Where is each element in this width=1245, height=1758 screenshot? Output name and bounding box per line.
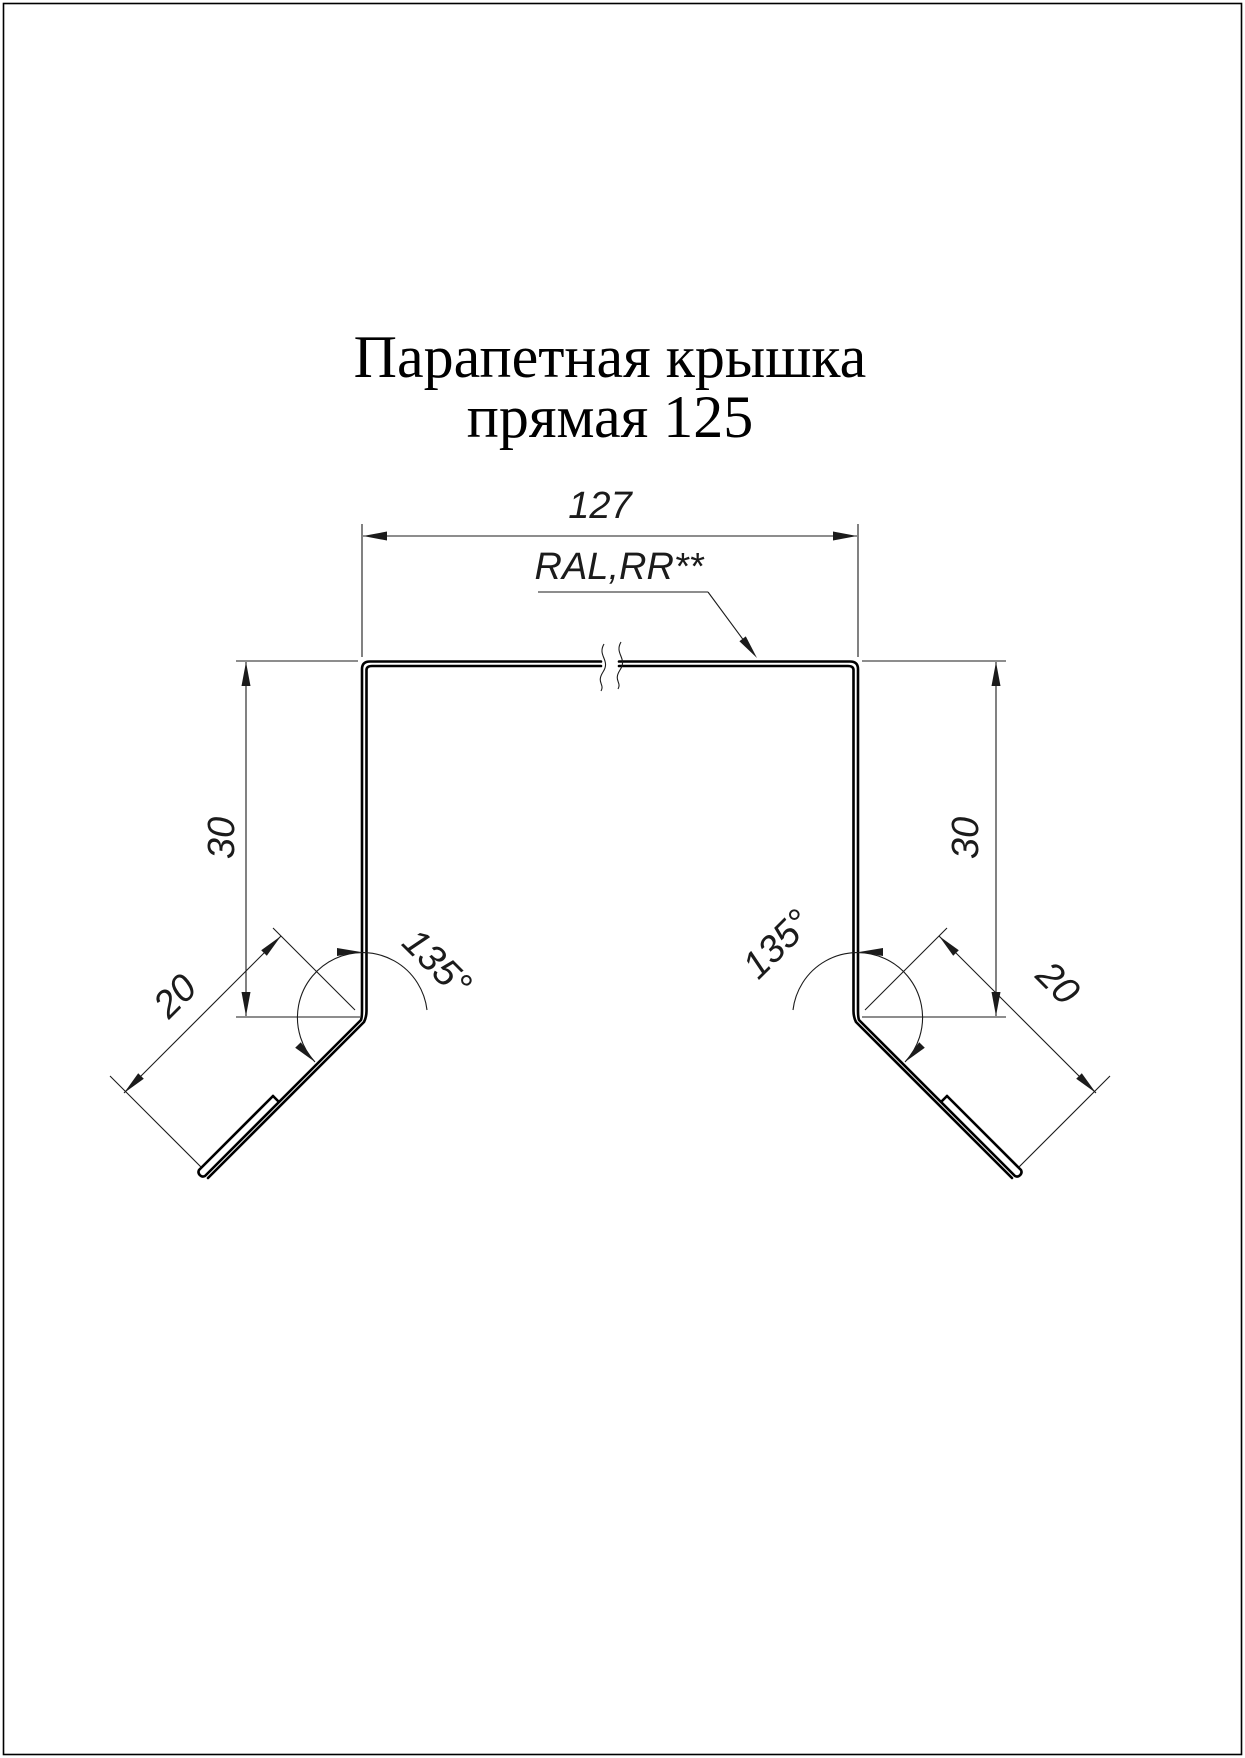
arrowhead-lower xyxy=(124,1073,144,1093)
arrowhead-top xyxy=(337,948,361,956)
profile-left-outer xyxy=(199,662,601,1177)
leader-arrowhead xyxy=(739,636,757,658)
arrowhead-left xyxy=(363,532,387,541)
dim-line xyxy=(124,936,281,1093)
arrowhead-leg xyxy=(905,1042,925,1062)
dim-right-angle-value: 135° xyxy=(735,902,820,987)
dimension-right-height: 30 xyxy=(862,661,1006,1017)
dimension-right-angle: 135° xyxy=(735,902,925,1062)
dimension-left-angle: 135° xyxy=(295,921,479,1062)
dim-right-height-value: 30 xyxy=(945,817,987,859)
arrowhead-leg xyxy=(295,1042,315,1062)
dim-left-angle-value: 135° xyxy=(394,921,479,1006)
profile-left-hem-step xyxy=(273,1096,279,1102)
arrowhead-top xyxy=(859,948,883,956)
coating-leader: RAL,RR** xyxy=(535,546,757,658)
dim-line xyxy=(939,936,1096,1093)
arrowhead-top xyxy=(242,662,251,686)
ext-line xyxy=(110,1076,201,1167)
drawing-page: Парапетная крышка прямая 125 xyxy=(0,0,1245,1758)
arrowhead-right xyxy=(833,532,857,541)
arrowhead-bottom xyxy=(242,992,251,1016)
arrowhead-top xyxy=(992,662,1001,686)
profile-outline xyxy=(199,642,1022,1178)
ext-line xyxy=(273,928,355,1010)
arrowhead-upper xyxy=(261,936,281,956)
dim-right-hem-value: 20 xyxy=(1027,953,1087,1013)
title-line-2: прямая 125 xyxy=(467,384,754,450)
dimension-right-hem: 20 xyxy=(865,928,1110,1167)
ext-line xyxy=(1019,1076,1110,1167)
ext-line xyxy=(865,928,947,1010)
page-border xyxy=(4,4,1242,1755)
dim-top-width-value: 127 xyxy=(568,485,633,527)
arrowhead-lower xyxy=(1076,1073,1096,1093)
dim-left-height-value: 30 xyxy=(201,817,243,859)
profile-right-hem-step xyxy=(942,1096,948,1102)
dimension-left-height: 30 xyxy=(201,661,360,1017)
break-symbol-left xyxy=(600,644,605,691)
arrowhead-upper xyxy=(939,936,959,956)
title-line-1: Парапетная крышка xyxy=(354,324,867,390)
profile-right-outer xyxy=(619,662,1021,1177)
drawing-title: Парапетная крышка прямая 125 xyxy=(354,324,867,450)
coating-label: RAL,RR** xyxy=(535,546,705,588)
dim-left-hem-value: 20 xyxy=(145,967,205,1027)
dimension-left-hem: 20 xyxy=(110,928,355,1167)
technical-drawing: Парапетная крышка прямая 125 xyxy=(0,0,1245,1758)
